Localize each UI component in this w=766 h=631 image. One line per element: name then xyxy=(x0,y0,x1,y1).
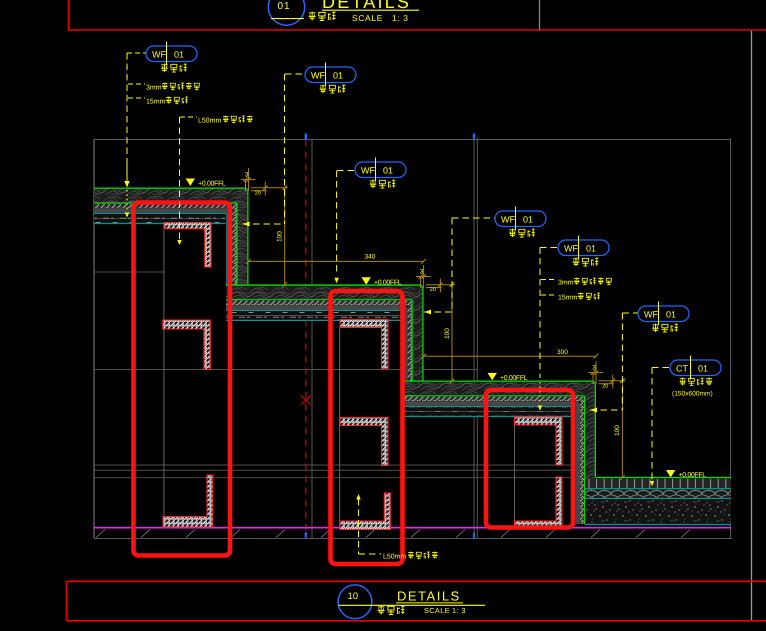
svg-text:100: 100 xyxy=(444,328,451,339)
svg-text:WF: WF xyxy=(644,310,658,320)
svg-text:1: 3: 1: 3 xyxy=(452,606,466,615)
svg-text:+0.00FFL: +0.00FFL xyxy=(500,375,528,382)
svg-text:3: 3 xyxy=(420,269,424,276)
svg-text:WF: WF xyxy=(311,71,325,81)
svg-text:SCALE: SCALE xyxy=(352,13,383,23)
svg-text:3: 3 xyxy=(592,365,596,372)
svg-text:20: 20 xyxy=(430,287,436,293)
svg-text:+0.00FFL: +0.00FFL xyxy=(679,472,707,479)
svg-text:15mm: 15mm xyxy=(558,295,578,302)
svg-text:100: 100 xyxy=(614,425,621,436)
svg-text:01: 01 xyxy=(333,71,343,81)
svg-text:3mm: 3mm xyxy=(146,85,162,92)
svg-text:01: 01 xyxy=(586,244,596,254)
svg-text:20: 20 xyxy=(602,383,608,389)
svg-text:20: 20 xyxy=(255,190,261,196)
svg-text:100: 100 xyxy=(277,231,284,242)
svg-text:3: 3 xyxy=(245,172,249,179)
svg-text:WF: WF xyxy=(564,244,578,254)
svg-text:DETAILS: DETAILS xyxy=(397,589,461,604)
svg-text:L50mm: L50mm xyxy=(383,554,407,561)
svg-text:01: 01 xyxy=(523,215,533,225)
svg-text:+0.00FFL: +0.00FFL xyxy=(374,279,402,286)
svg-text:3mm: 3mm xyxy=(558,280,574,287)
svg-text:SCALE: SCALE xyxy=(424,606,450,615)
svg-text:WF: WF xyxy=(501,215,515,225)
svg-text:1: 3: 1: 3 xyxy=(392,13,409,23)
svg-text:01: 01 xyxy=(383,166,393,176)
svg-text:300: 300 xyxy=(557,349,568,356)
svg-text:01: 01 xyxy=(666,310,676,320)
svg-text:01: 01 xyxy=(698,364,708,374)
svg-text:15mm: 15mm xyxy=(146,99,166,106)
svg-text:CT: CT xyxy=(676,364,688,374)
svg-text:+0.00FFL: +0.00FFL xyxy=(198,181,226,188)
svg-text:WF: WF xyxy=(152,50,166,60)
svg-text:01: 01 xyxy=(174,50,184,60)
svg-text:L50mm: L50mm xyxy=(198,118,222,125)
svg-text:10: 10 xyxy=(348,591,359,602)
svg-text:340: 340 xyxy=(365,254,376,261)
svg-text:01: 01 xyxy=(278,1,291,12)
svg-text:WF: WF xyxy=(361,166,375,176)
svg-text:(150x600mm): (150x600mm) xyxy=(672,391,713,398)
